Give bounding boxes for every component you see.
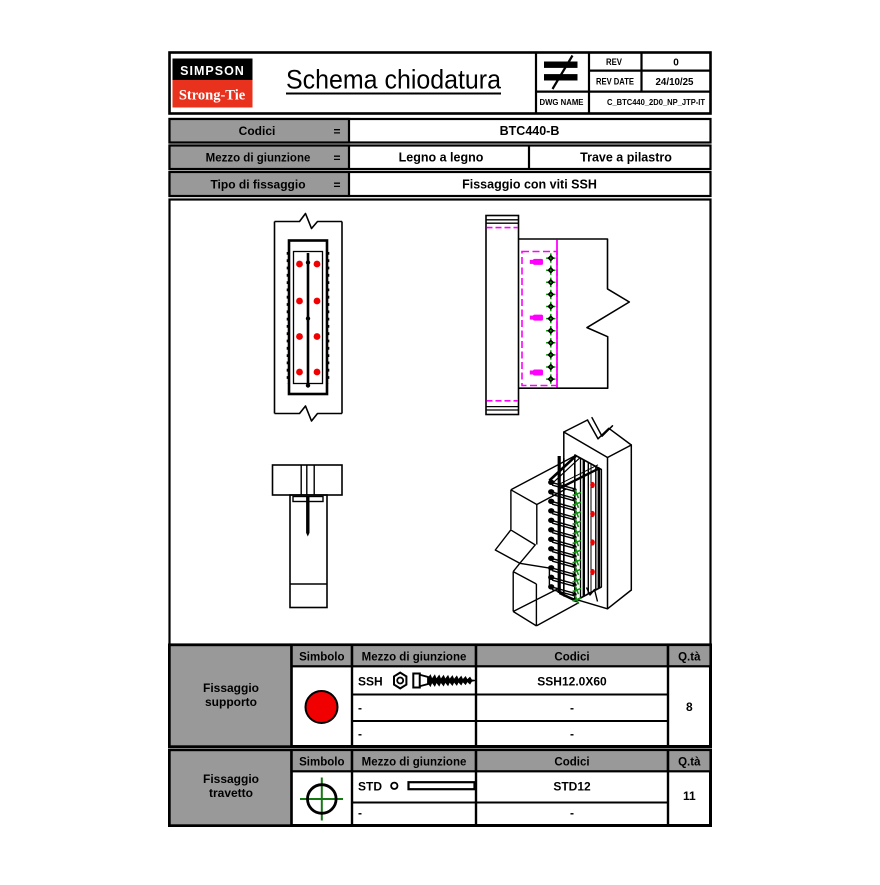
svg-text:Q.tà: Q.tà xyxy=(678,652,701,664)
svg-text:=: = xyxy=(333,178,340,192)
svg-text:Strong-Tie: Strong-Tie xyxy=(179,88,246,104)
svg-text:Mezzo di giunzione: Mezzo di giunzione xyxy=(206,153,311,165)
svg-text:24/10/25: 24/10/25 xyxy=(656,77,694,88)
svg-text:Mezzo di giunzione: Mezzo di giunzione xyxy=(362,652,467,664)
svg-text:BTC440-B: BTC440-B xyxy=(500,124,560,138)
svg-text:-: - xyxy=(358,806,362,820)
svg-text:Simbolo: Simbolo xyxy=(299,652,344,664)
svg-text:=: = xyxy=(333,125,340,139)
svg-text:REV DATE: REV DATE xyxy=(596,77,634,87)
svg-text:Codici: Codici xyxy=(554,757,589,769)
svg-text:-: - xyxy=(570,727,574,741)
svg-text:C_BTC440_2D0_NP_JTP-IT: C_BTC440_2D0_NP_JTP-IT xyxy=(607,98,705,107)
svg-text:travetto: travetto xyxy=(209,786,253,800)
svg-text:STD: STD xyxy=(358,780,382,794)
svg-text:SIMPSON: SIMPSON xyxy=(180,64,245,78)
svg-text:Trave a pilastro: Trave a pilastro xyxy=(580,151,672,165)
svg-text:-: - xyxy=(358,701,362,715)
svg-text:REV: REV xyxy=(606,57,622,67)
svg-text:Q.tà: Q.tà xyxy=(678,757,701,769)
svg-text:Mezzo di giunzione: Mezzo di giunzione xyxy=(362,757,467,769)
svg-text:=: = xyxy=(333,151,340,165)
svg-text:-: - xyxy=(570,806,574,820)
svg-text:Fissaggio: Fissaggio xyxy=(203,772,259,786)
svg-text:Codici: Codici xyxy=(239,124,276,138)
svg-text:Schema chiodatura: Schema chiodatura xyxy=(286,65,502,95)
svg-text:SSH12.0X60: SSH12.0X60 xyxy=(537,675,607,689)
svg-text:Fissaggio con viti SSH: Fissaggio con viti SSH xyxy=(462,178,597,192)
svg-text:8: 8 xyxy=(686,700,693,714)
svg-text:DWG NAME: DWG NAME xyxy=(540,97,584,107)
svg-text:-: - xyxy=(570,701,574,715)
svg-text:Codici: Codici xyxy=(554,652,589,664)
svg-text:SSH: SSH xyxy=(358,675,383,689)
svg-text:STD12: STD12 xyxy=(553,780,591,794)
svg-text:11: 11 xyxy=(683,789,696,803)
svg-text:Legno a legno: Legno a legno xyxy=(399,151,484,165)
svg-text:Simbolo: Simbolo xyxy=(299,757,344,769)
svg-text:Fissaggio: Fissaggio xyxy=(203,681,259,695)
svg-text:supporto: supporto xyxy=(205,695,257,709)
svg-text:-: - xyxy=(358,727,362,741)
svg-text:0: 0 xyxy=(673,58,679,69)
svg-text:Tipo di fissaggio: Tipo di fissaggio xyxy=(210,178,305,192)
